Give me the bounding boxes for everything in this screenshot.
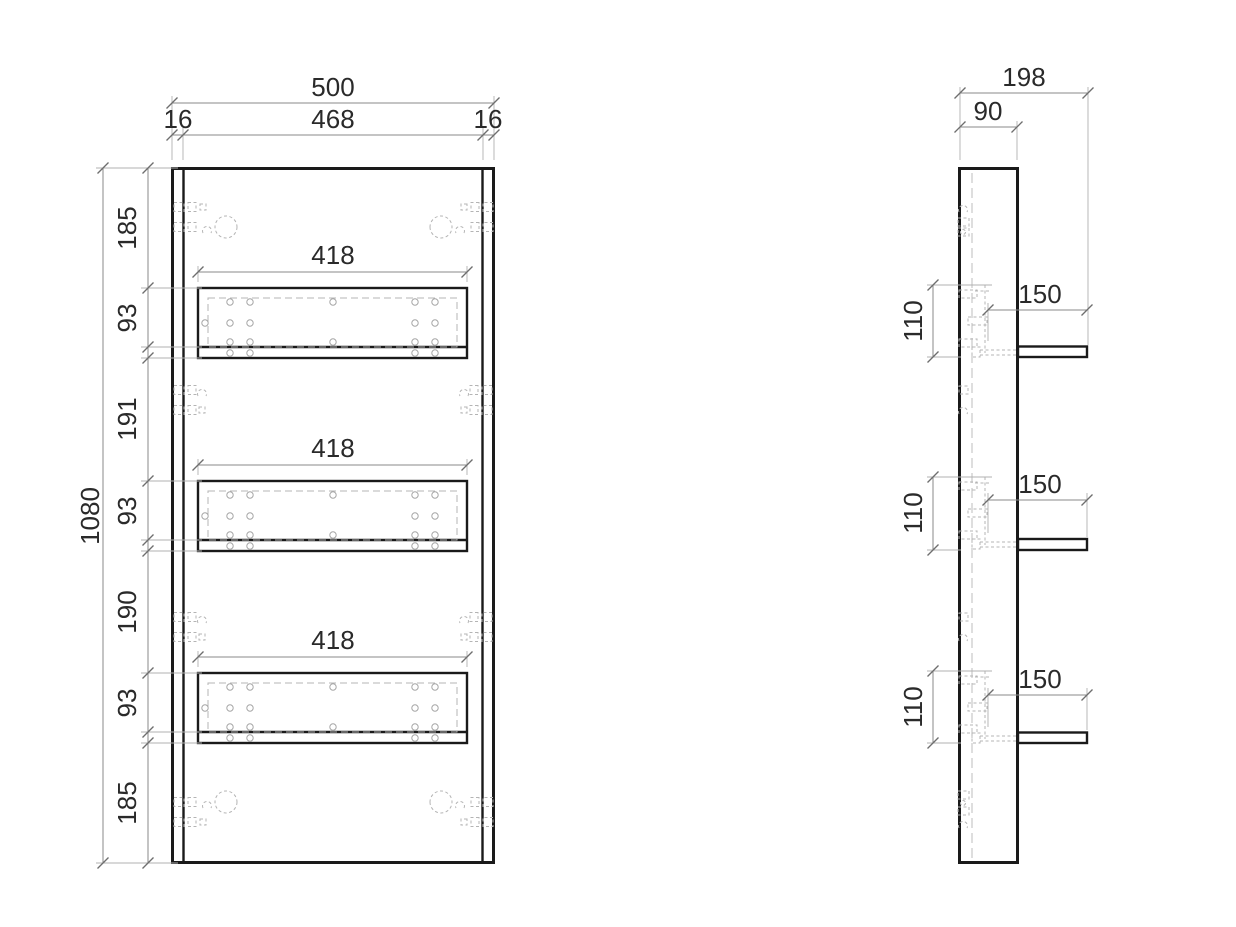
dim-front-height-total: 1080 [75,487,105,545]
dim-front-chain-4: 190 [112,590,142,633]
front-view: 500 16 468 16 1080 [75,72,502,869]
dim-front-chain-1: 93 [112,304,142,333]
side-shelf-3 [1018,733,1087,744]
dim-front-chain-2: 191 [112,397,142,440]
side-shelf-2 [1018,539,1087,550]
drawing-canvas: 500 16 468 16 1080 [0,0,1236,927]
front-panel-outline [173,169,494,863]
side-panel-outline [960,169,1018,863]
shelf-technical-drawing: 500 16 468 16 1080 [0,0,1236,927]
dim-front-width-inner: 468 [311,104,354,134]
side-shelf-1 [1018,347,1087,358]
dim-side-shelf-depth-0: 150 [1018,279,1061,309]
dim-front-chain-6: 185 [112,781,142,824]
dim-side-shelf-depth-2: 150 [1018,664,1061,694]
dim-front-edge-right: 16 [474,104,503,134]
side-view: 198 90 150 150 150 [898,62,1094,863]
dim-front-chain-0: 185 [112,206,142,249]
dim-front-shelf-width-1: 418 [311,433,354,463]
dim-front-shelf-width-2: 418 [311,625,354,655]
dim-side-shelf-spacing-0: 110 [898,300,928,341]
dim-front-width-total: 500 [311,72,354,102]
dim-front-edge-left: 16 [164,104,193,134]
front-top-dimensions: 500 16 468 16 [164,72,503,160]
dim-side-depth-total: 198 [1002,62,1045,92]
dim-front-shelf-width-0: 418 [311,240,354,270]
dim-front-chain-3: 93 [112,497,142,526]
dim-front-chain-5: 93 [112,689,142,718]
dim-side-shelf-depth-1: 150 [1018,469,1061,499]
dim-side-panel-thickness: 90 [974,96,1003,126]
dim-side-shelf-spacing-1: 110 [898,492,928,533]
dim-side-shelf-spacing-2: 110 [898,686,928,727]
